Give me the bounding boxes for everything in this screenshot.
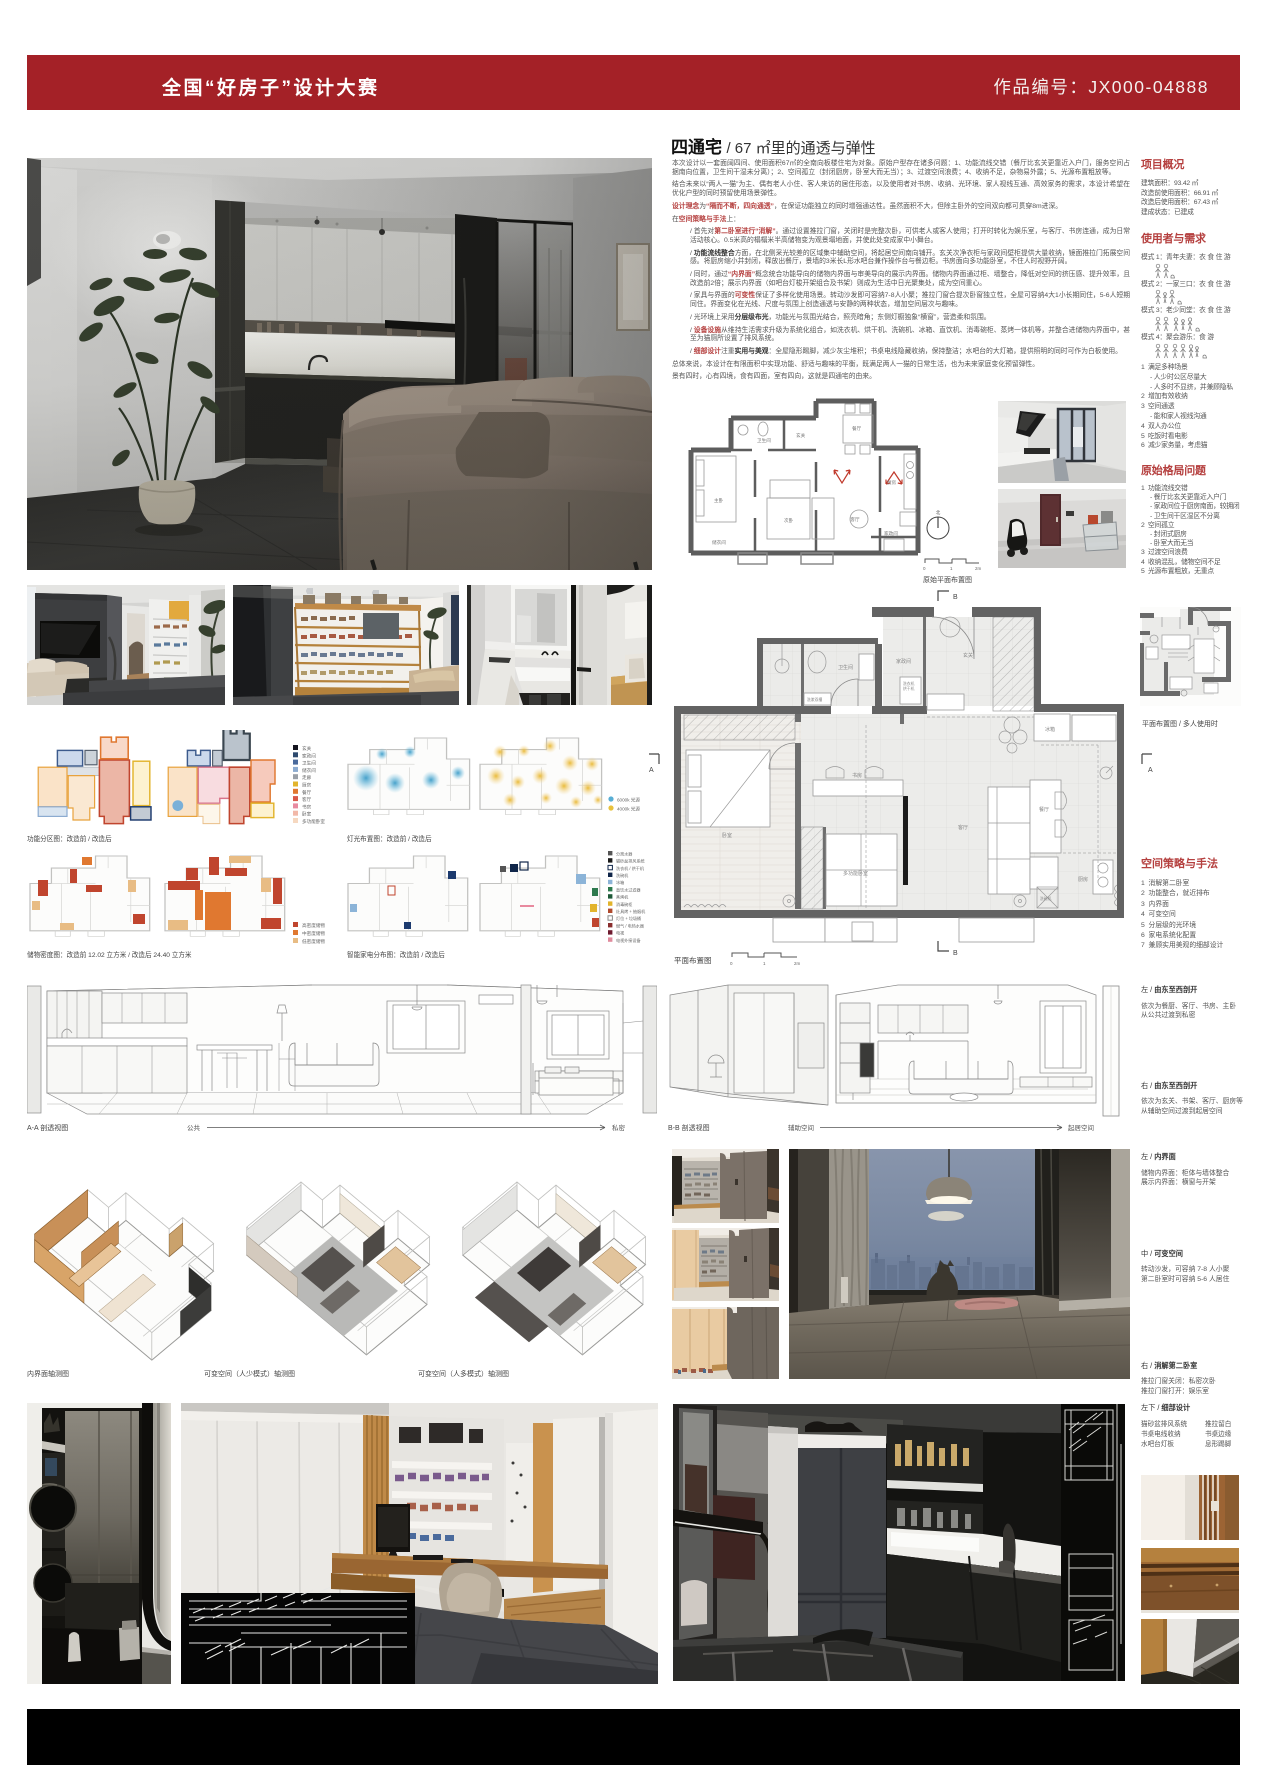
svg-text:厨房: 厨房 (887, 479, 897, 486)
svg-text:灯位 + 垃圾桶: 灯位 + 垃圾桶 (616, 915, 641, 921)
svg-text:B: B (953, 950, 958, 957)
svg-text:1: 1 (950, 566, 953, 571)
svg-text:储衣间: 储衣间 (302, 767, 316, 774)
svg-text:中密度储物: 中密度储物 (302, 930, 325, 937)
svg-text:B: B (953, 594, 958, 601)
svg-text:灶具烤 + 抽烟机: 灶具烤 + 抽烟机 (616, 908, 645, 914)
svg-text:可变空间（人多模式）轴测图: 可变空间（人多模式）轴测图 (418, 1369, 509, 1378)
svg-text:洗衣机: 洗衣机 (903, 681, 915, 686)
svg-text:智能家电分布图：改造前 / 改造后: 智能家电分布图：改造前 / 改造后 (347, 950, 445, 959)
svg-text:私密: 私密 (612, 1123, 626, 1132)
svg-text:冰箱: 冰箱 (616, 879, 624, 885)
svg-text:餐厅: 餐厅 (852, 425, 862, 432)
svg-text:辅助空间: 辅助空间 (788, 1123, 814, 1132)
svg-text:玄关: 玄关 (963, 652, 973, 659)
svg-text:B-B 剖透视图: B-B 剖透视图 (668, 1123, 710, 1132)
svg-text:洗衣机 / 烘干机: 洗衣机 / 烘干机 (616, 865, 644, 871)
svg-text:平面布置图: 平面布置图 (674, 955, 712, 965)
svg-text:客厅: 客厅 (958, 824, 968, 831)
svg-text:2m: 2m (794, 961, 801, 966)
svg-text:家政间: 家政间 (896, 658, 911, 665)
svg-text:客厅: 客厅 (850, 516, 860, 523)
svg-text:4000k 光源: 4000k 光源 (617, 806, 640, 813)
svg-text:6000k 光源: 6000k 光源 (617, 797, 640, 804)
svg-text:北: 北 (936, 509, 941, 516)
svg-text:猫砂盆排风系统: 猫砂盆排风系统 (616, 858, 645, 864)
svg-text:卧室: 卧室 (722, 832, 732, 839)
svg-text:高密度储物: 高密度储物 (302, 922, 325, 929)
svg-text:A-A 剖透视图: A-A 剖透视图 (27, 1123, 68, 1132)
svg-text:家政间: 家政间 (884, 530, 898, 537)
svg-text:次卧: 次卧 (784, 517, 794, 524)
svg-text:餐厅: 餐厅 (1039, 806, 1049, 813)
svg-text:原始平面布置图: 原始平面布置图 (923, 575, 972, 584)
svg-text:A: A (649, 767, 654, 774)
svg-text:1: 1 (763, 961, 766, 966)
svg-text:厨房: 厨房 (302, 782, 312, 789)
svg-text:卫生间: 卫生间 (838, 664, 853, 671)
svg-text:书房: 书房 (852, 772, 862, 779)
svg-text:卫生间: 卫生间 (757, 437, 771, 444)
svg-text:走廊: 走廊 (302, 774, 312, 781)
svg-text:玄关: 玄关 (796, 432, 806, 439)
svg-text:公共: 公共 (187, 1123, 201, 1132)
svg-text:洗碗机: 洗碗机 (616, 872, 628, 878)
svg-text:客厅: 客厅 (302, 796, 312, 803)
svg-text:可变空间（人少模式）轴测图: 可变空间（人少模式）轴测图 (204, 1369, 295, 1378)
svg-text:厨房: 厨房 (1078, 876, 1088, 883)
svg-text:2m: 2m (975, 566, 982, 571)
svg-text:灯光布置图：改造前 / 改造后: 灯光布置图：改造前 / 改造后 (347, 834, 432, 843)
svg-text:多功能卧室: 多功能卧室 (302, 818, 325, 825)
svg-text:多功能卧室: 多功能卧室 (843, 870, 868, 877)
svg-text:主卧: 主卧 (714, 497, 724, 504)
svg-text:家政间: 家政间 (302, 752, 316, 759)
svg-text:卫生间: 卫生间 (302, 760, 316, 767)
svg-text:功能分区图：改造前 / 改造后: 功能分区图：改造前 / 改造后 (27, 834, 112, 843)
svg-text:0: 0 (730, 961, 733, 966)
svg-text:低密度储物: 低密度储物 (302, 938, 325, 945)
svg-text:0: 0 (923, 566, 926, 571)
svg-text:直饮水过滤器: 直饮水过滤器 (616, 886, 641, 892)
svg-text:电视外接设备: 电视外接设备 (616, 937, 641, 943)
svg-text:内界面轴测图: 内界面轴测图 (27, 1369, 69, 1378)
svg-text:玄关: 玄关 (302, 745, 312, 752)
svg-text:洗漱双槽: 洗漱双槽 (807, 697, 822, 702)
svg-text:卧室: 卧室 (302, 811, 312, 818)
svg-text:餐厅: 餐厅 (302, 789, 312, 796)
svg-text:烘干机: 烘干机 (903, 686, 915, 691)
svg-text:蒸烤机: 蒸烤机 (616, 894, 628, 900)
svg-text:起居空间: 起居空间 (1068, 1123, 1094, 1132)
svg-text:燃气 / 电热水器: 燃气 / 电热水器 (616, 922, 644, 928)
svg-text:洗碗机: 洗碗机 (1040, 896, 1052, 901)
svg-text:A: A (1148, 767, 1153, 774)
svg-text:书房: 书房 (302, 803, 312, 810)
svg-text:消毒碗柜: 消毒碗柜 (616, 901, 632, 907)
svg-text:储衣间: 储衣间 (712, 539, 726, 546)
svg-text:冰箱: 冰箱 (1045, 726, 1055, 733)
svg-text:电视: 电视 (616, 930, 624, 936)
svg-text:储物密度图：改造前 12.02 立方米 / 改造后 24.4: 储物密度图：改造前 12.02 立方米 / 改造后 24.40 立方米 (27, 950, 192, 959)
svg-text:分离水器: 分离水器 (616, 850, 632, 856)
